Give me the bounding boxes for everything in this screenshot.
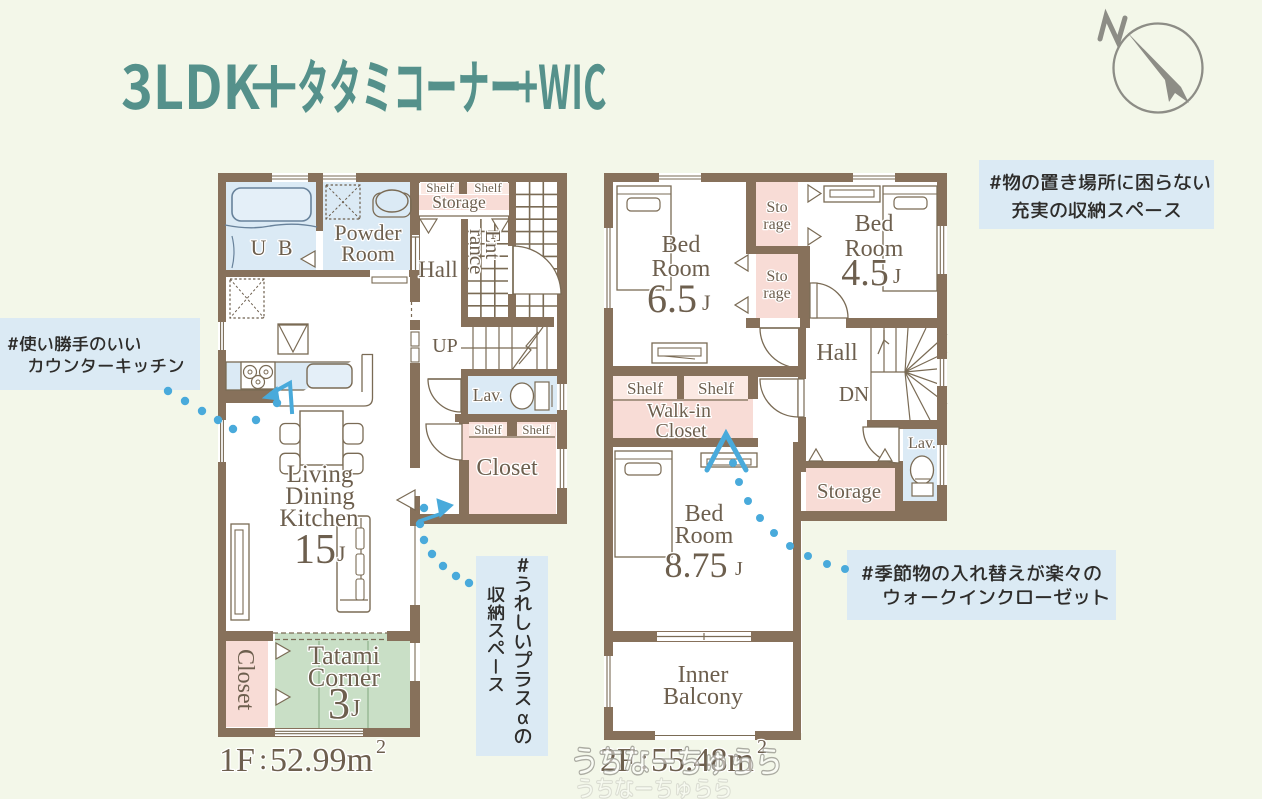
svg-text:DN: DN: [839, 382, 869, 406]
svg-text:1F: 1F: [219, 742, 255, 779]
svg-text:Walk-in: Walk-in: [647, 400, 711, 422]
svg-text:J: J: [337, 541, 346, 566]
svg-text:Sto: Sto: [766, 199, 787, 216]
svg-text:Lav.: Lav.: [473, 385, 503, 405]
svg-text:2: 2: [376, 736, 386, 758]
svg-text:15: 15: [294, 527, 336, 573]
svg-text:Shelf: Shelf: [522, 422, 550, 437]
svg-text:J: J: [702, 290, 711, 315]
svg-text:Hall: Hall: [816, 340, 858, 366]
svg-text:J: J: [351, 696, 360, 722]
svg-text:3: 3: [328, 679, 350, 728]
svg-text::: :: [259, 743, 267, 776]
svg-text:4.5: 4.5: [841, 252, 889, 294]
svg-text:Closet: Closet: [232, 649, 258, 711]
svg-text:Balcony: Balcony: [663, 684, 743, 710]
svg-text:Shelf: Shelf: [698, 379, 734, 398]
svg-text:rance: rance: [465, 229, 489, 274]
svg-text:Shelf: Shelf: [474, 422, 502, 437]
svg-text:Room: Room: [341, 241, 395, 266]
svg-text:J: J: [735, 558, 743, 580]
svg-text:Shelf: Shelf: [474, 180, 502, 195]
svg-text:J: J: [893, 264, 901, 288]
svg-text:U B: U B: [250, 235, 295, 260]
svg-text:Closet: Closet: [655, 420, 707, 442]
svg-text:Closet: Closet: [476, 455, 538, 481]
svg-text:Shelf: Shelf: [627, 379, 663, 398]
svg-text:Storage: Storage: [817, 479, 881, 503]
svg-text:8.75: 8.75: [665, 545, 728, 585]
svg-text:UP: UP: [432, 335, 458, 357]
svg-text:Hall: Hall: [418, 257, 458, 282]
svg-text:52.99m: 52.99m: [270, 742, 373, 779]
svg-text:rage: rage: [763, 285, 791, 302]
svg-text:6.5: 6.5: [647, 276, 697, 321]
svg-text:rage: rage: [763, 216, 791, 233]
svg-text:Bed: Bed: [855, 211, 894, 237]
svg-text:Storage: Storage: [432, 192, 486, 212]
svg-text:Shelf: Shelf: [426, 180, 454, 195]
svg-text:Bed: Bed: [662, 232, 701, 258]
svg-text:Lav.: Lav.: [908, 435, 936, 452]
svg-text:Sto: Sto: [766, 268, 787, 285]
